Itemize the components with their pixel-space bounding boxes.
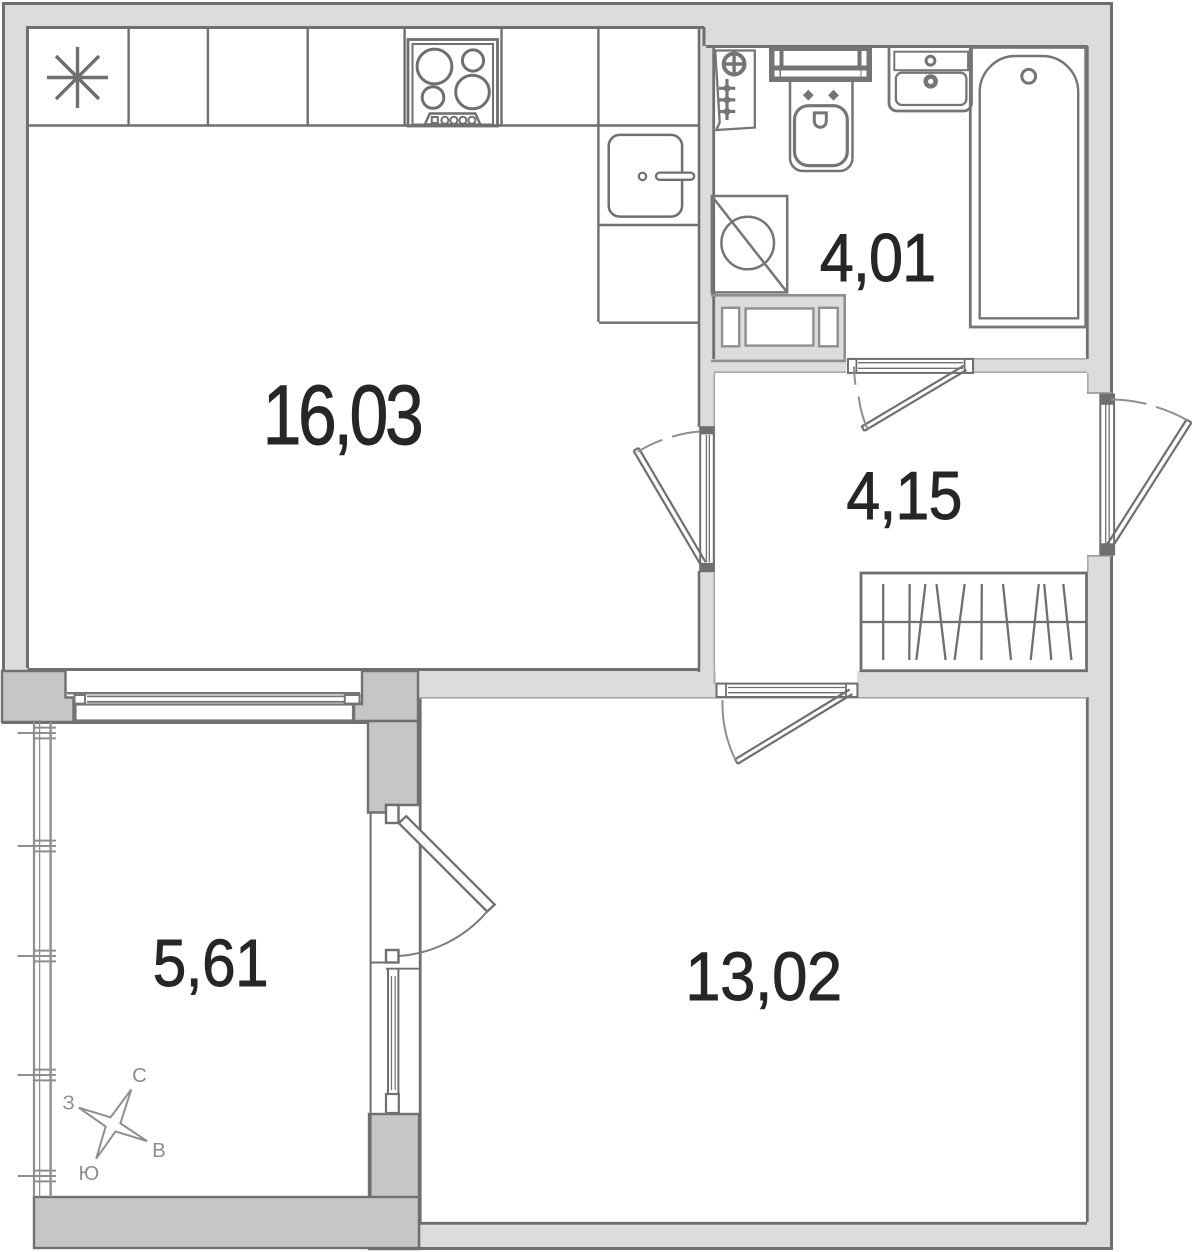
svg-text:З: З bbox=[62, 1092, 74, 1115]
svg-text:16,03: 16,03 bbox=[263, 369, 422, 463]
svg-text:5,61: 5,61 bbox=[153, 925, 269, 1001]
svg-text:13,02: 13,02 bbox=[685, 939, 842, 1016]
svg-text:С: С bbox=[132, 1064, 147, 1087]
svg-text:4,15: 4,15 bbox=[846, 458, 961, 534]
svg-text:4,01: 4,01 bbox=[820, 219, 935, 296]
svg-text:Ю: Ю bbox=[78, 1162, 99, 1185]
svg-text:В: В bbox=[152, 1139, 166, 1162]
